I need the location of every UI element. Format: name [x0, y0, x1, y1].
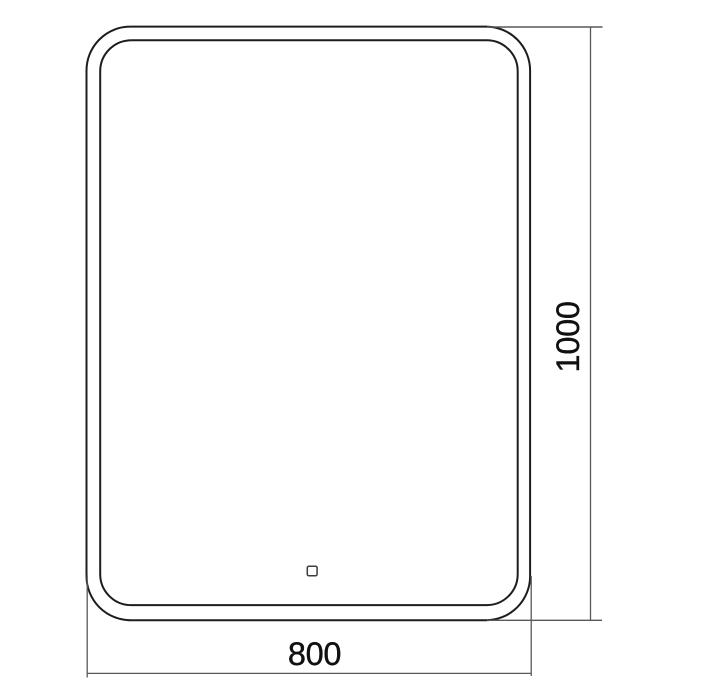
- svg-text:800: 800: [288, 636, 341, 672]
- svg-text:1000: 1000: [550, 301, 586, 372]
